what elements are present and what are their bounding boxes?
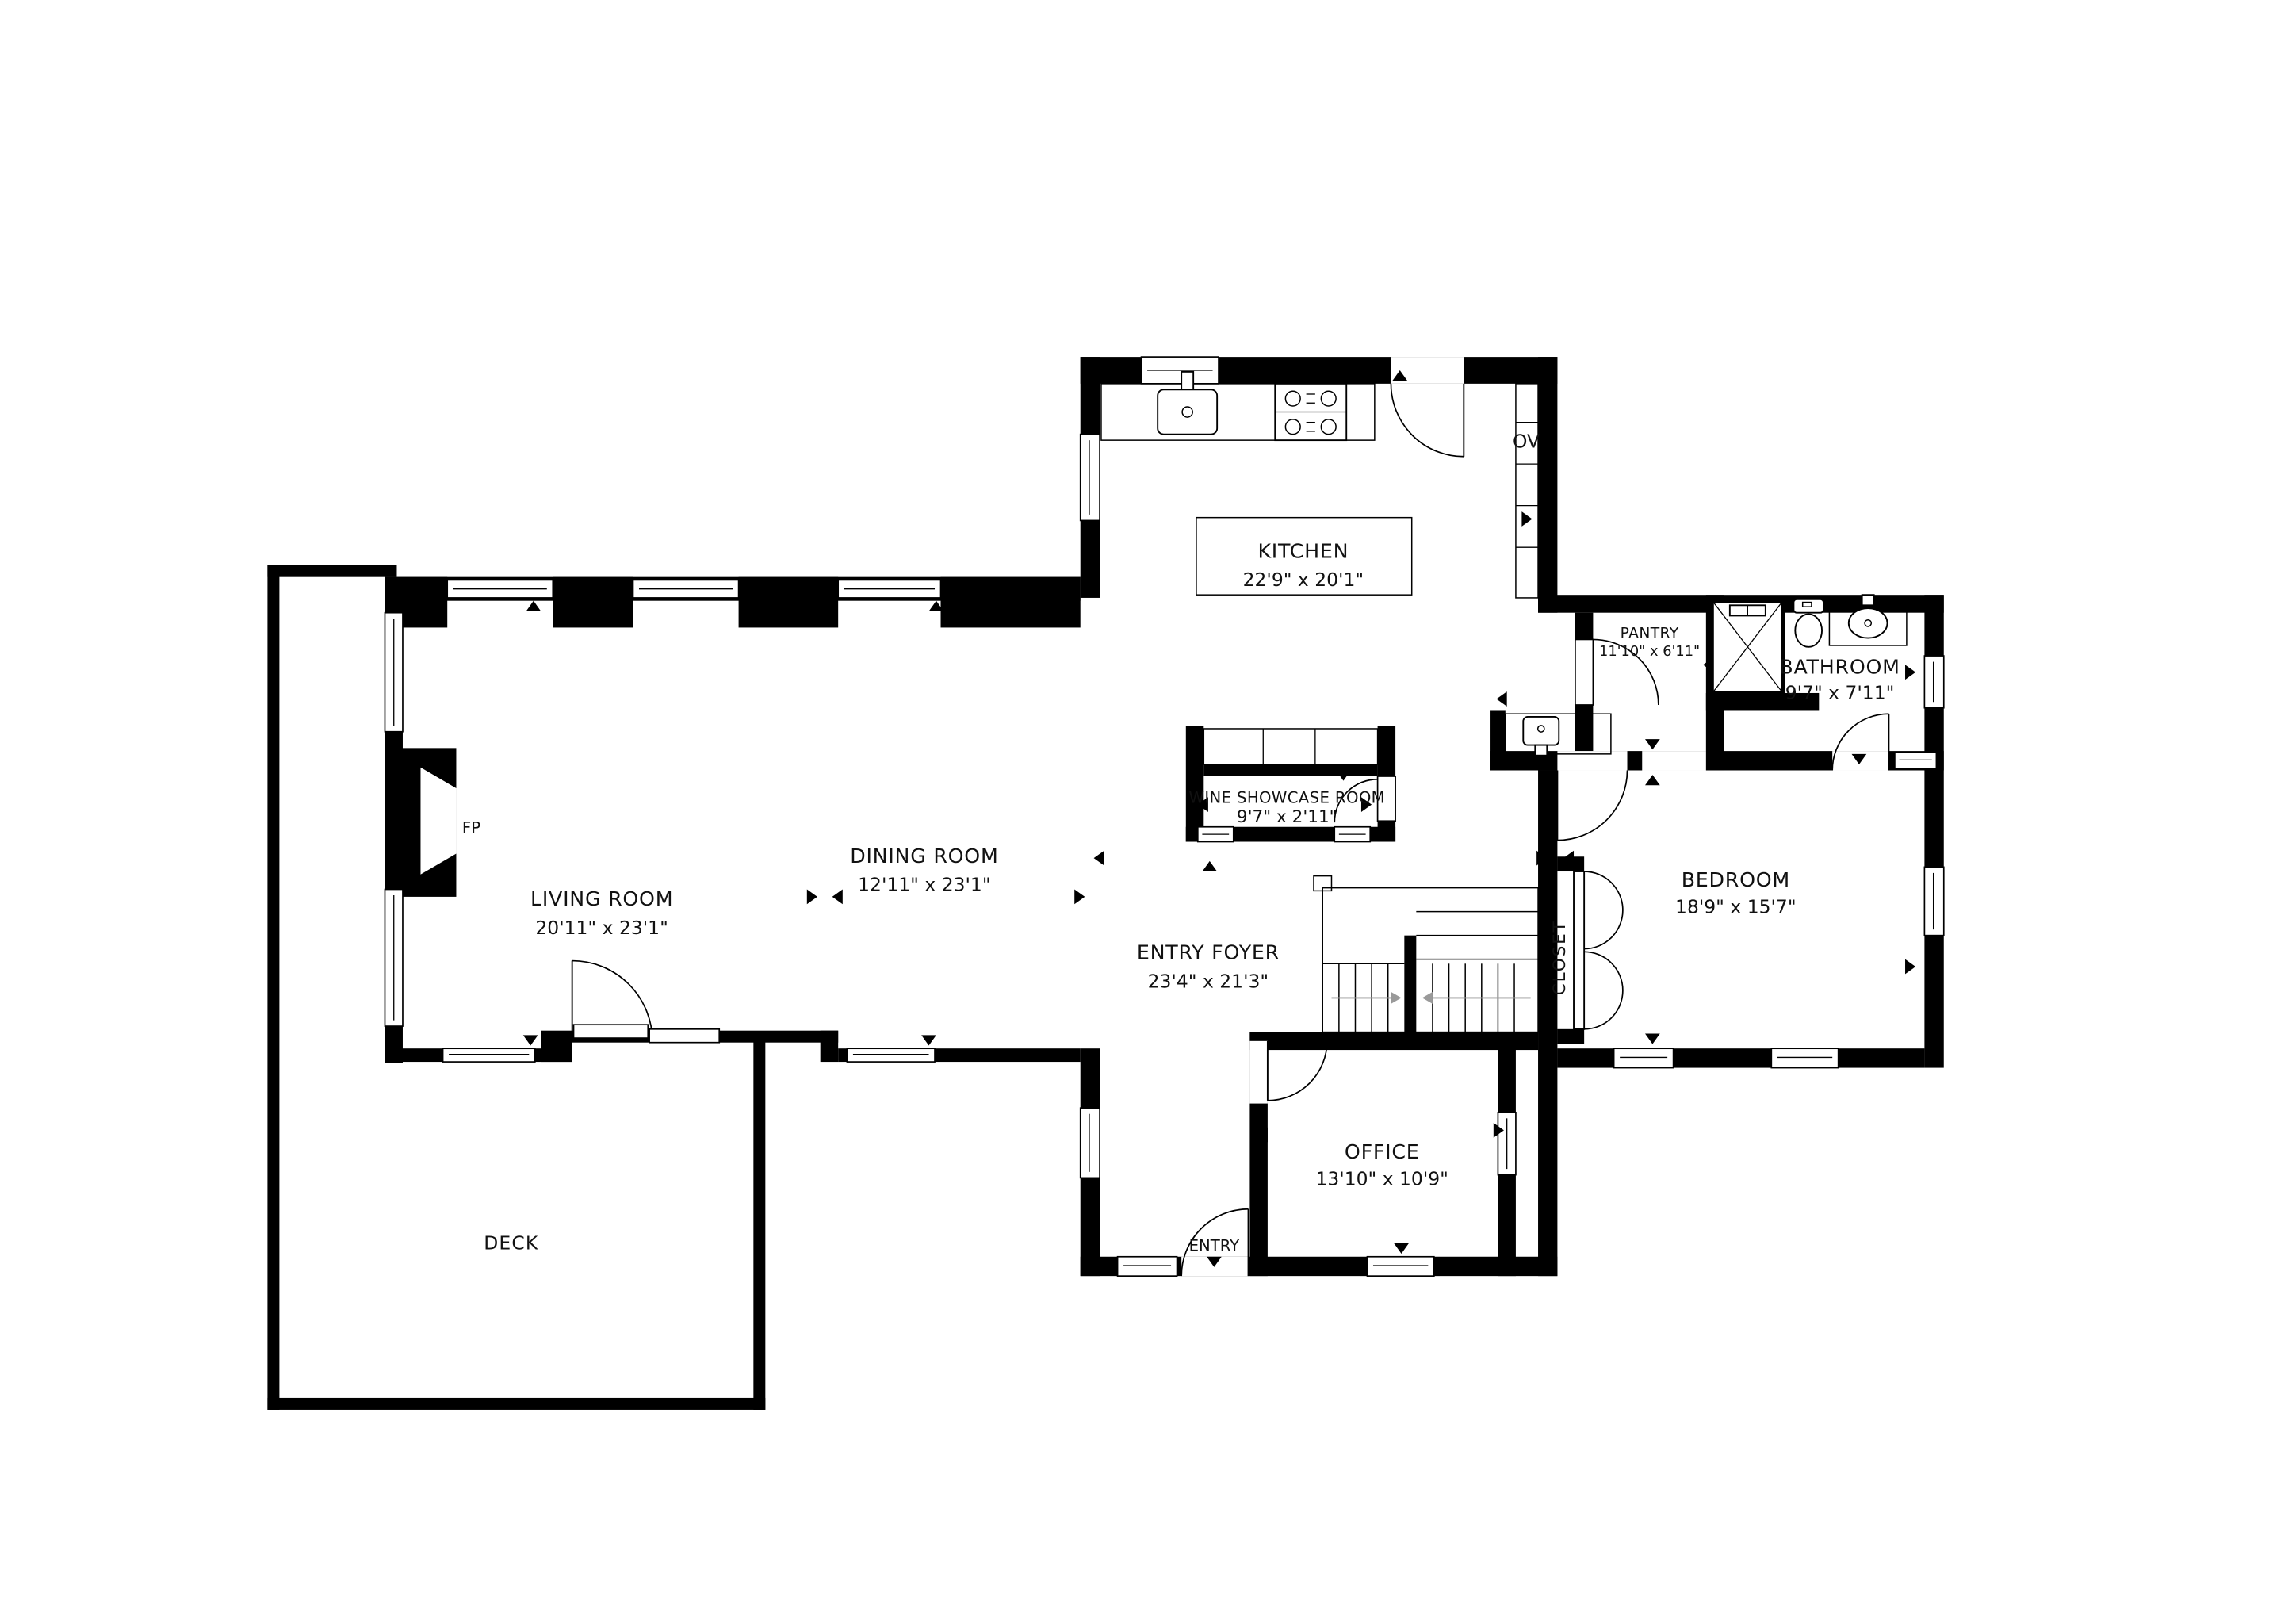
room-label-dining-room: DINING ROOM	[850, 845, 998, 868]
fireplace-label: FP	[462, 818, 480, 837]
toilet-icon	[1793, 599, 1823, 647]
window	[1771, 1048, 1838, 1067]
window	[1081, 1108, 1100, 1178]
floorplan-page: KITCHEN 22'9" x 20'1" LIVING ROOM 20'11"…	[0, 0, 2296, 1624]
room-label-wine-showcase: WINE SHOWCASE ROOM	[1188, 789, 1385, 807]
window	[1367, 1257, 1433, 1276]
window	[847, 1048, 935, 1062]
window	[1142, 357, 1219, 384]
entry-label: ENTRY	[1189, 1236, 1241, 1254]
window	[838, 580, 940, 598]
wine-bar-counter	[1203, 729, 1377, 764]
window	[1498, 1113, 1515, 1175]
window	[1334, 827, 1370, 842]
window	[1895, 753, 1936, 769]
room-dims-kitchen: 22'9" x 20'1"	[1243, 569, 1364, 591]
stove-icon	[1275, 384, 1346, 440]
door-arc	[1391, 384, 1464, 457]
room-label-office: OFFICE	[1345, 1140, 1420, 1163]
window	[633, 580, 739, 598]
window	[447, 580, 553, 598]
oven-cabinets	[1516, 384, 1538, 598]
window	[1118, 1257, 1177, 1276]
room-dims-living-room: 20'11" x 23'1"	[535, 917, 668, 939]
window	[1614, 1048, 1674, 1067]
room-dims-pantry: 11'10" x 6'11"	[1599, 643, 1700, 660]
room-label-pantry: PANTRY	[1621, 626, 1679, 642]
room-label-entry-foyer: ENTRY FOYER	[1137, 941, 1280, 964]
room-label-deck: DECK	[484, 1231, 538, 1254]
room-label-bedroom: BEDROOM	[1682, 868, 1790, 891]
pantry-sink-icon	[1506, 714, 1611, 756]
room-dims-wine-showcase: 9'7" x 2'11"	[1237, 807, 1337, 827]
room-label-bathroom: BATHROOM	[1779, 656, 1900, 679]
opening-markers	[523, 370, 1915, 1267]
floorplan-drawing: KITCHEN 22'9" x 20'1" LIVING ROOM 20'11"…	[0, 0, 2296, 1624]
door-arc	[1557, 770, 1627, 840]
window	[443, 1048, 535, 1062]
windows	[385, 357, 1943, 1276]
staircase	[1314, 876, 1538, 1032]
window	[1081, 435, 1100, 521]
room-dims-bathroom: 9'7" x 7'11"	[1785, 681, 1895, 703]
room-dims-office: 13'10" x 10'9"	[1315, 1168, 1448, 1190]
window	[385, 890, 402, 1027]
window	[1924, 867, 1943, 935]
window	[1198, 827, 1234, 842]
room-label-kitchen: KITCHEN	[1257, 539, 1349, 562]
room-label-closet: CLOSET	[1550, 920, 1570, 995]
room-dims-entry-foyer: 23'4" x 21'3"	[1148, 970, 1269, 992]
room-dims-bedroom: 18'9" x 15'7"	[1675, 896, 1797, 918]
shower-icon	[1712, 601, 1783, 693]
room-label-living-room: LIVING ROOM	[530, 887, 673, 910]
closet-bifold-doors	[1574, 871, 1623, 1029]
oven-label: OV	[1513, 431, 1540, 453]
window	[1924, 656, 1943, 708]
room-dims-dining-room: 12'11" x 23'1"	[858, 873, 990, 895]
window	[385, 613, 402, 732]
